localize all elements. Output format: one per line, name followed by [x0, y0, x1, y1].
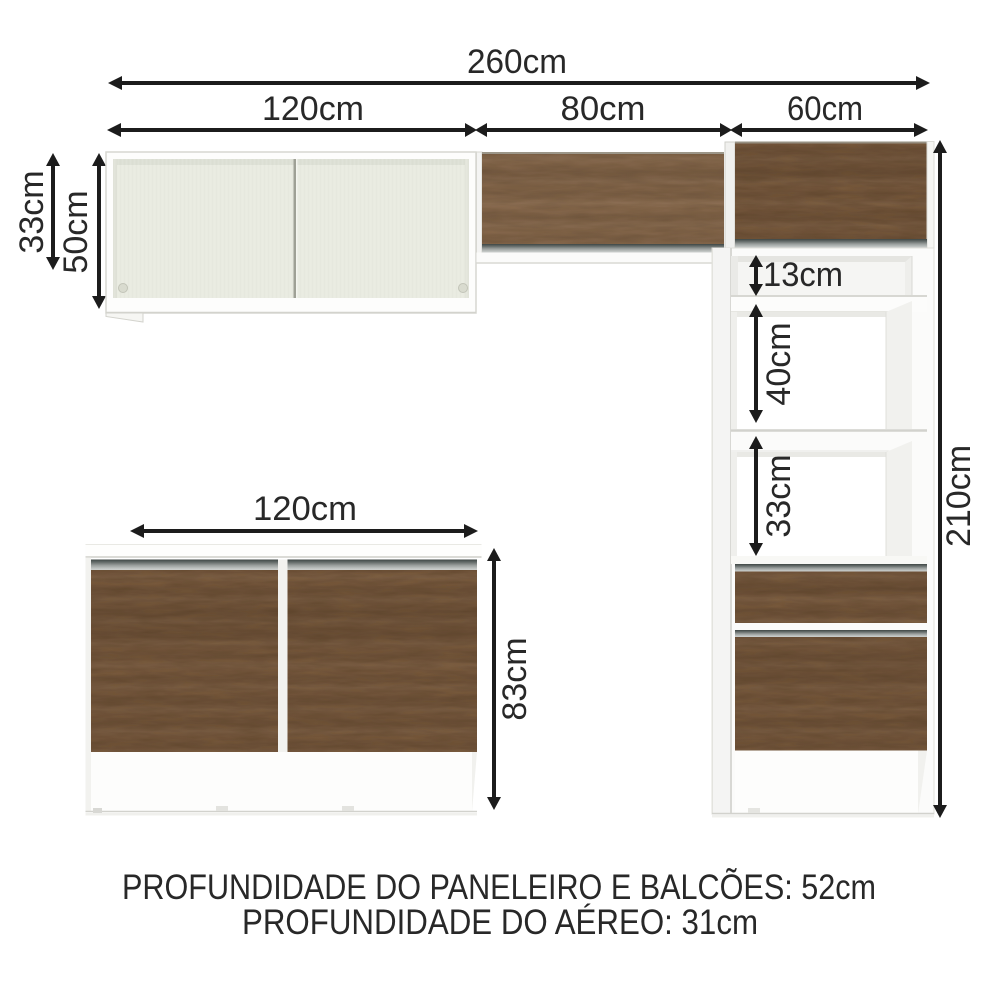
- svg-text:260cm: 260cm: [467, 43, 567, 81]
- svg-text:83cm: 83cm: [496, 637, 534, 720]
- svg-text:210cm: 210cm: [940, 445, 978, 547]
- svg-text:33cm: 33cm: [760, 454, 798, 537]
- svg-text:13cm: 13cm: [763, 256, 843, 294]
- svg-text:120cm: 120cm: [253, 490, 357, 528]
- svg-text:60cm: 60cm: [787, 90, 863, 128]
- svg-text:40cm: 40cm: [760, 322, 798, 405]
- svg-text:PROFUNDIDADE DO AÉREO: 31cm: PROFUNDIDADE DO AÉREO: 31cm: [242, 903, 758, 942]
- svg-text:120cm: 120cm: [262, 90, 364, 128]
- svg-text:50cm: 50cm: [57, 190, 95, 273]
- svg-text:PROFUNDIDADE DO PANELEIRO E BA: PROFUNDIDADE DO PANELEIRO E BALCÕES: 52c…: [122, 867, 876, 907]
- svg-text:33cm: 33cm: [13, 170, 51, 253]
- svg-text:80cm: 80cm: [561, 90, 646, 128]
